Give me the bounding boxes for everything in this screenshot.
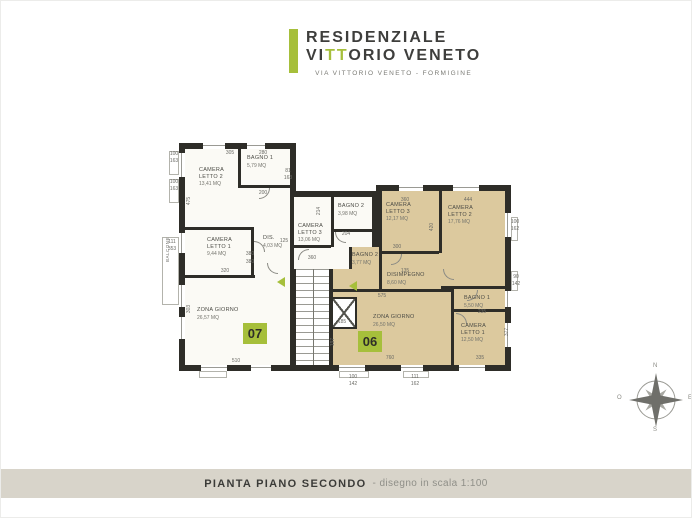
window-opening (179, 233, 185, 253)
room-name: CAMERA LETTO 2 (199, 167, 227, 180)
window-opening (399, 185, 423, 191)
room-label: BAGNO 15,50 mq (464, 295, 498, 309)
partition (294, 245, 331, 248)
dimension-label: 360 (401, 197, 409, 203)
room-name: CAMERA LETTO 1 (461, 323, 489, 336)
dimension-label: 100 (170, 179, 178, 185)
partition (185, 275, 255, 278)
room-label: BAGNO 23,98 mq (338, 203, 372, 217)
footer-subtitle: - disegno in scala 1:100 (373, 478, 488, 489)
entrance-arrow-06 (349, 281, 357, 291)
room-name: BAGNO 2 (352, 252, 382, 259)
room-name: CAMERA LETTO 3 (298, 223, 326, 236)
dimension-label: 142 (512, 281, 520, 287)
room-area: 3,98 mq (338, 211, 372, 217)
room-area: 5,50 mq (464, 303, 498, 309)
dimension-label: 142 (349, 381, 357, 387)
brand-text: RESIDENZIALE VITTORIO VENETO VIA VITTORI… (306, 29, 481, 77)
window-opening (453, 185, 479, 191)
window-opening (179, 317, 185, 339)
compass-north-label: N (653, 363, 657, 369)
room-name: ZONA GIORNO (373, 314, 423, 321)
compass-east-label: E (688, 395, 692, 401)
dimension-label: 163 (284, 175, 292, 181)
footer-band: PIANTA PIANO SECONDO - disegno in scala … (1, 469, 691, 498)
brand-logo: RESIDENZIALE VITTORIO VENETO VIA VITTORI… (289, 29, 481, 77)
room-label: CAMERA LETTO 313,06 mq (298, 223, 326, 243)
room-area: 26,57 mq (197, 315, 247, 321)
room-label: ZONA GIORNO26,50 mq (373, 314, 423, 328)
dimension-label: 305 (226, 150, 234, 156)
room-name: BAGNO 1 (464, 295, 498, 302)
room-area: 13,06 mq (298, 237, 326, 243)
window-opening (203, 143, 225, 149)
brand-line2-post: ORIO VENETO (348, 47, 481, 64)
room-label: ZONA GIORNO26,57 mq (197, 307, 247, 321)
partition (451, 286, 454, 365)
dimension-label: 760 (386, 355, 394, 361)
dimension-label: 204 (342, 231, 350, 237)
room-area: 9,44 mq (207, 251, 235, 257)
dimension-label: 125 (280, 238, 288, 244)
dimension-label: 163 (170, 158, 178, 164)
dimension-label: 510 (232, 358, 240, 364)
dimension-label: 335 (476, 355, 484, 361)
brand-bar-icon (289, 29, 298, 73)
partition (439, 191, 442, 253)
dimension-label: 214 (316, 207, 322, 215)
dimension-label: 444 (464, 197, 472, 203)
stairwell (296, 269, 329, 365)
page: RESIDENZIALE VITTORIO VENETO VIA VITTORI… (0, 0, 692, 518)
brand-address: VIA VITTORIO VENETO - FORMIGINE (306, 70, 481, 77)
brand-line2-pre: VI (306, 47, 325, 64)
dimension-label: 81 (285, 168, 291, 174)
room-area: 5,79 mq (247, 163, 281, 169)
dimension-label: 100 (511, 219, 519, 225)
entrance-arrow-07 (277, 277, 285, 287)
window-opening (247, 143, 265, 149)
partition (331, 197, 334, 247)
partition (238, 149, 241, 187)
room-area: 17,76 mq (448, 219, 476, 225)
room-area: 12,17 mq (386, 216, 414, 222)
room-label: BAGNO 23,77 mq (352, 252, 382, 266)
room-label: CAMERA LETTO 312,17 mq (386, 202, 414, 222)
room-name: BAGNO 2 (338, 203, 372, 210)
dimension-label: 185 (338, 319, 346, 325)
dimension-label: 360 (308, 255, 316, 261)
compass-west-label: O (617, 395, 622, 401)
stairs-divider (313, 269, 314, 365)
dimension-label: 235 (478, 309, 486, 315)
window-opening (505, 291, 511, 307)
compass-south-label: S (653, 427, 657, 433)
dimension-label: 475 (186, 197, 192, 205)
room-name: CAMERA LETTO 2 (448, 205, 476, 218)
room-label: CAMERA LETTO 112,50 mq (461, 323, 489, 343)
dimension-label: 100 (349, 374, 357, 380)
dimension-label: 135 (401, 268, 409, 274)
partition (185, 227, 253, 230)
room-label: CAMERA LETTO 213,41 mq (199, 167, 227, 187)
room-area: 26,50 mq (373, 322, 423, 328)
room-name: CAMERA LETTO 3 (386, 202, 414, 215)
room-area: 8,60 mq (387, 280, 431, 286)
dimension-label: 90 (513, 274, 519, 280)
dimension-label: 200 (259, 190, 267, 196)
dimension-label: 320 (221, 268, 229, 274)
room-area: 3,77 mq (352, 260, 382, 266)
room-area: 13,41 mq (199, 181, 227, 187)
unit-badge-07: 07 (243, 323, 267, 344)
brand-line1: RESIDENZIALE (306, 29, 481, 47)
dimension-label: 162 (411, 381, 419, 387)
brand-line2: VITTORIO VENETO (306, 47, 481, 65)
room-name: ZONA GIORNO (197, 307, 247, 314)
room-label: CAMERA LETTO 19,44 mq (207, 237, 235, 257)
brand-line2-accent: TT (325, 47, 348, 64)
dimension-label: 380 (246, 259, 254, 265)
room-area: 12,50 mq (461, 337, 489, 343)
footer-title: PIANTA PIANO SECONDO (204, 478, 366, 490)
dimension-label: 377 (504, 328, 510, 336)
dimension-label: 100 (170, 151, 178, 157)
dimension-label: 197 (330, 338, 336, 346)
dimension-label: 303 (186, 305, 192, 313)
dimension-label: 280 (259, 150, 267, 156)
dimension-label: 162 (511, 226, 519, 232)
window-opening (179, 285, 185, 307)
window-opening (251, 365, 271, 371)
dimension-label: 420 (429, 223, 435, 231)
dimension-label: 163 (170, 186, 178, 192)
unit-badge-06: 06 (358, 331, 382, 352)
dimension-label: 575 (378, 293, 386, 299)
room-name: CAMERA LETTO 1 (207, 237, 235, 250)
room-label: DISIMPEGNO8,60 mq (387, 272, 431, 286)
dimension-label: 300 (393, 244, 401, 250)
dimension-label: 111 (411, 374, 419, 380)
window-opening (459, 365, 485, 371)
room-label: CAMERA LETTO 217,76 mq (448, 205, 476, 225)
room-label: BAGNO 15,79 mq (247, 155, 281, 169)
balcony (199, 371, 227, 378)
compass-rose (626, 370, 686, 430)
window-opening (179, 153, 185, 177)
dimension-label: 353 (168, 246, 176, 252)
dimension-label: 111 (168, 239, 176, 245)
dimension-label: 380 (246, 251, 254, 257)
